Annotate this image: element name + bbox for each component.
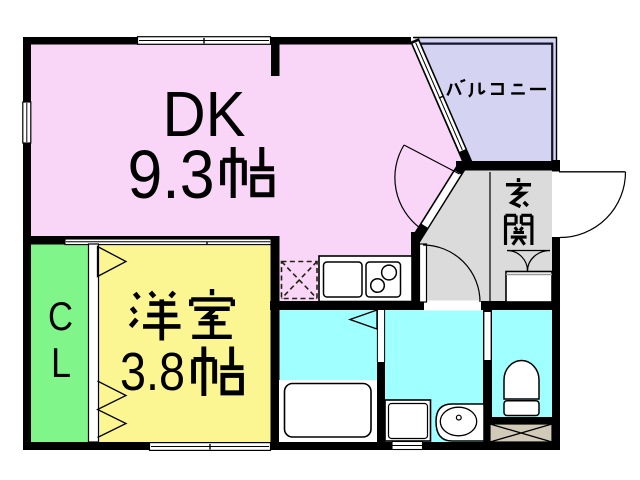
svg-text:C: C [48,295,73,339]
svg-text:9.3: 9.3 [128,136,215,213]
svg-text:3.8: 3.8 [120,342,185,402]
svg-text:L: L [51,339,71,386]
